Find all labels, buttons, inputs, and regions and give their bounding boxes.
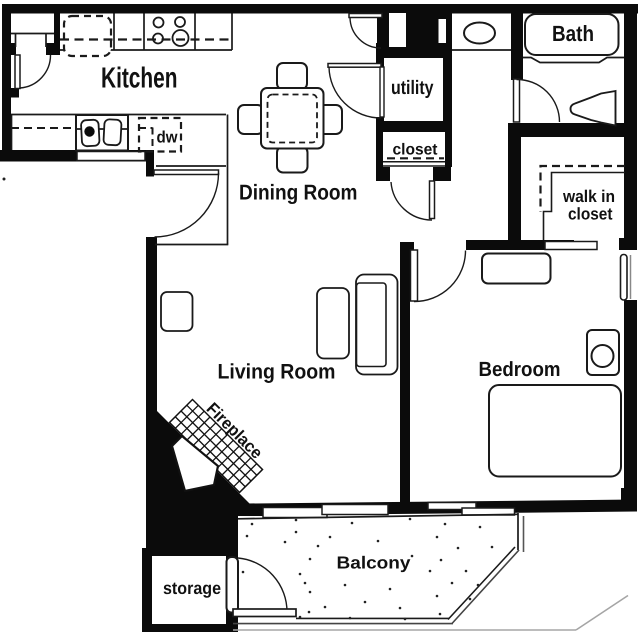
svg-text:Bath: Bath — [552, 21, 594, 46]
svg-text:Balcony: Balcony — [337, 553, 411, 573]
svg-text:closet: closet — [568, 205, 613, 224]
svg-text:Dining Room: Dining Room — [239, 181, 358, 205]
svg-text:closet: closet — [393, 142, 439, 159]
svg-text:walk in: walk in — [562, 187, 615, 206]
svg-text:Bedroom: Bedroom — [479, 358, 561, 381]
svg-text:dw: dw — [157, 129, 178, 147]
svg-text:storage: storage — [163, 578, 221, 598]
svg-text:Living Room: Living Room — [218, 361, 336, 384]
svg-text:utility: utility — [391, 77, 434, 99]
svg-text:Kitchen: Kitchen — [101, 63, 178, 95]
